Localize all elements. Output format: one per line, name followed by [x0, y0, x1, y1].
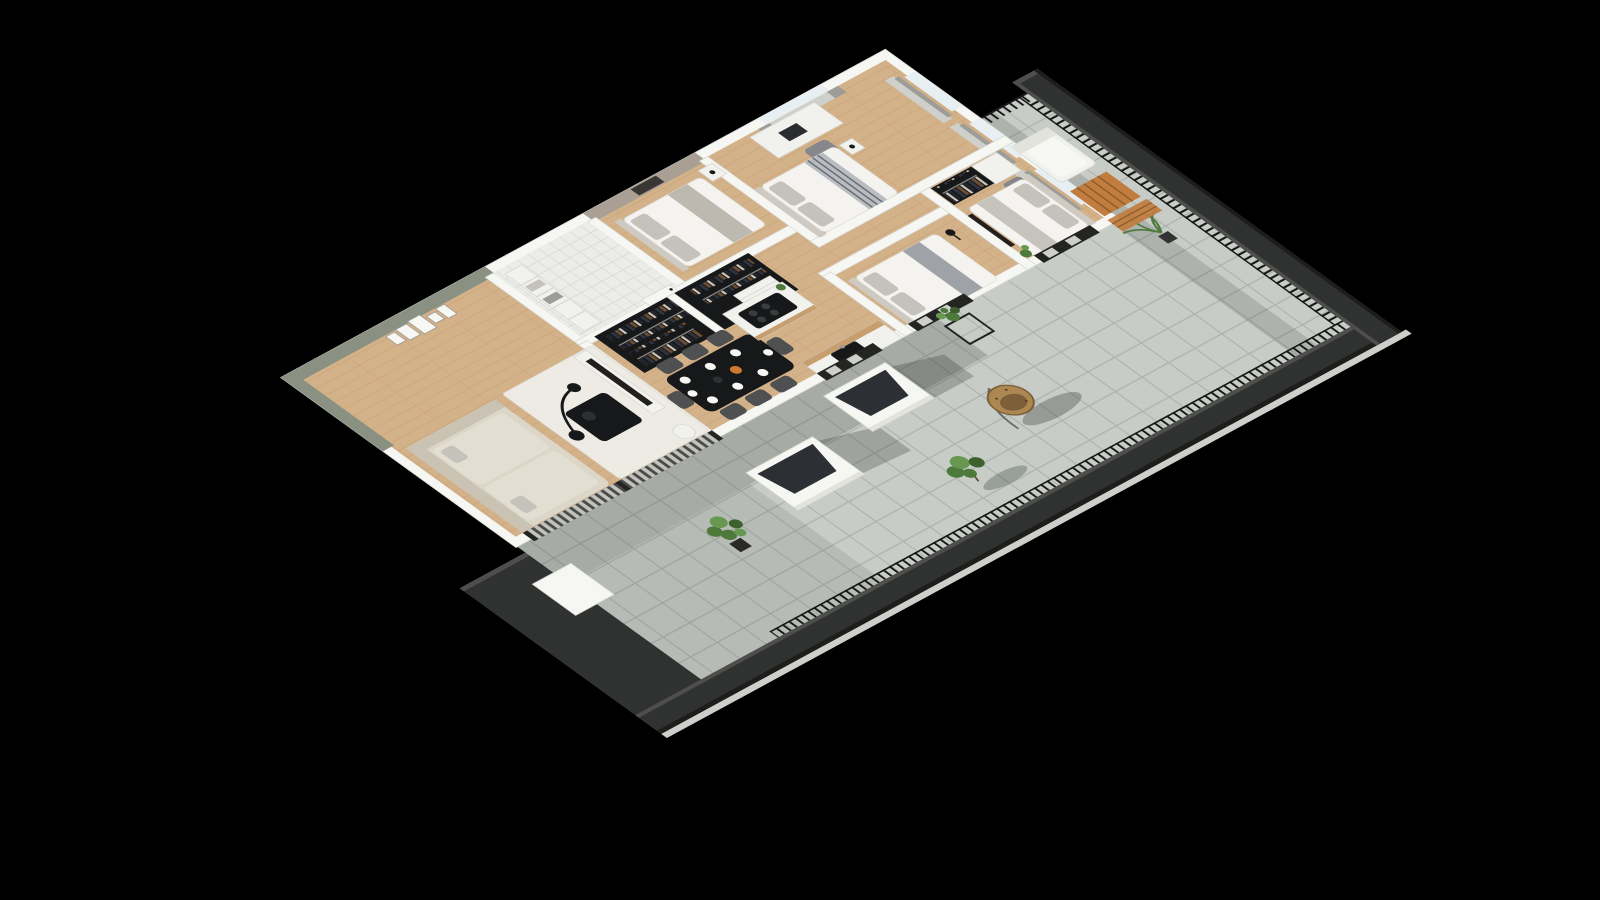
floorplan-svg	[171, 0, 1472, 755]
render-canvas	[0, 0, 1600, 900]
floorplan-projection	[171, 0, 1472, 755]
